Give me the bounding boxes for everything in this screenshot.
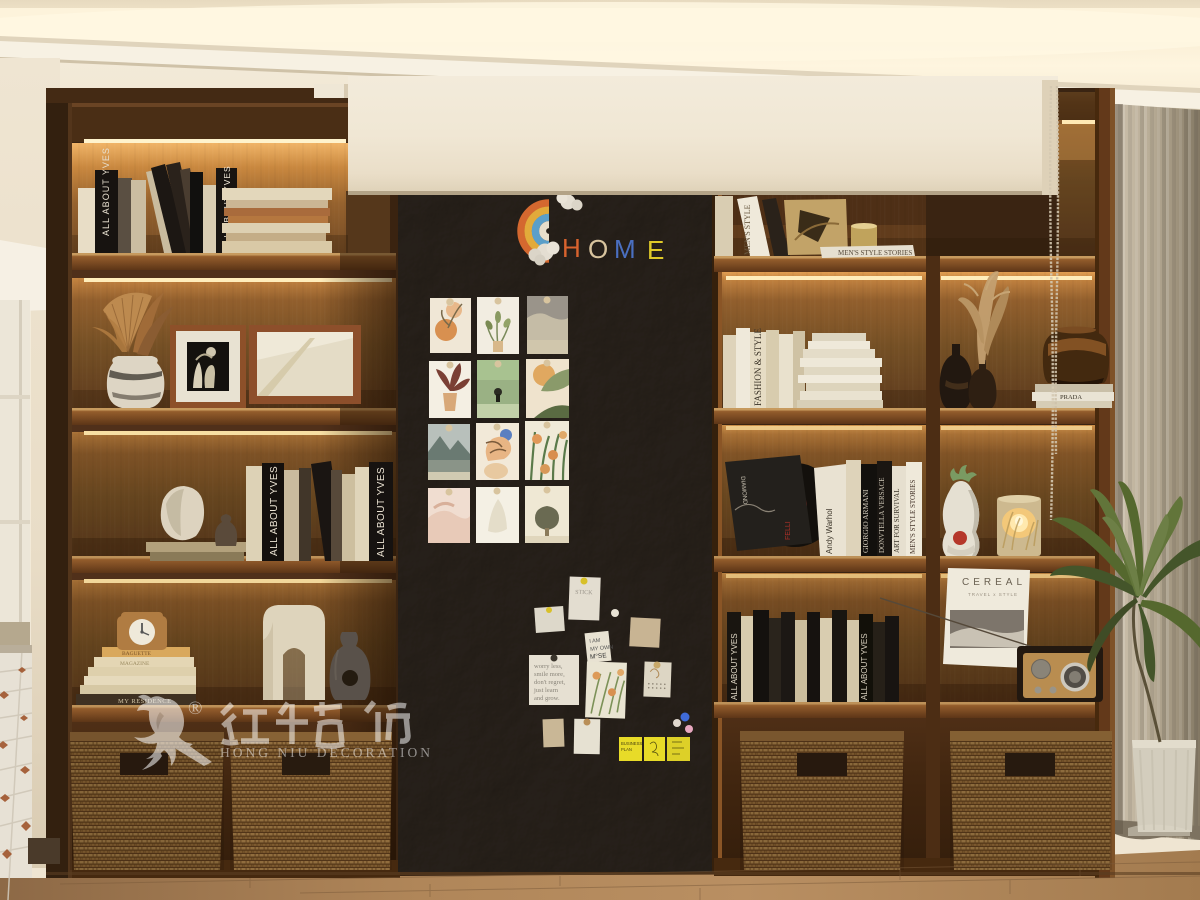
svg-text:worry less,: worry less, [534, 663, 563, 670]
svg-text:PRADA: PRADA [1060, 394, 1082, 401]
svg-text:ALL ABOUT YVES: ALL ABOUT YVES [860, 633, 869, 700]
svg-text:don't regret,: don't regret, [534, 679, 566, 686]
svg-text:just learn: just learn [533, 687, 559, 694]
svg-text:MEN'S STYLE: MEN'S STYLE [743, 204, 752, 255]
svg-text:smile more,: smile more, [534, 671, 565, 678]
svg-text:GIORGIO ARMANI: GIORGIO ARMANI [861, 489, 870, 553]
svg-text:ALL ABOUT YVES: ALL ABOUT YVES [376, 467, 387, 557]
svg-text:STICK: STICK [575, 590, 593, 597]
svg-text:PLAN: PLAN [621, 747, 632, 752]
svg-text:BUSINESS: BUSINESS [621, 741, 642, 746]
svg-text:HONG NIU DECORATION: HONG NIU DECORATION [220, 745, 433, 760]
svg-text:I AM: I AM [589, 638, 601, 645]
svg-text:and grow.: and grow. [534, 695, 560, 702]
svg-text:O: O [588, 234, 608, 264]
svg-text:MEN'S STYLE STORIES: MEN'S STYLE STORIES [838, 249, 912, 257]
svg-text:FASHION & STYLE: FASHION & STYLE [753, 328, 763, 406]
svg-text:E: E [647, 235, 664, 265]
svg-text:M: M [614, 234, 636, 264]
svg-text:MAGAZINE: MAGAZINE [120, 661, 150, 667]
svg-text:Andy Warhol: Andy Warhol [825, 508, 834, 554]
svg-text:ALL ABOUT YVES: ALL ABOUT YVES [101, 147, 111, 236]
svg-text:CEREAL: CEREAL [962, 577, 1026, 588]
svg-text:®: ® [188, 698, 202, 719]
svg-text:ALL ABOUT YVES: ALL ABOUT YVES [269, 466, 280, 556]
svg-text:BAGUETTE: BAGUETTE [122, 651, 152, 657]
svg-text:H: H [562, 233, 581, 263]
svg-text:TRAVEL x STYLE: TRAVEL x STYLE [968, 592, 1018, 597]
svg-text:MEN'S STYLE STORIES: MEN'S STYLE STORIES [909, 480, 917, 554]
svg-text:ALL ABOUT YVES: ALL ABOUT YVES [730, 633, 739, 700]
svg-text:ART FOR SURVIVAL: ART FOR SURVIVAL [893, 489, 901, 554]
svg-text:DONVTELLA VERSACE: DONVTELLA VERSACE [878, 477, 886, 553]
svg-text:FELLI: FELLI [785, 521, 792, 540]
